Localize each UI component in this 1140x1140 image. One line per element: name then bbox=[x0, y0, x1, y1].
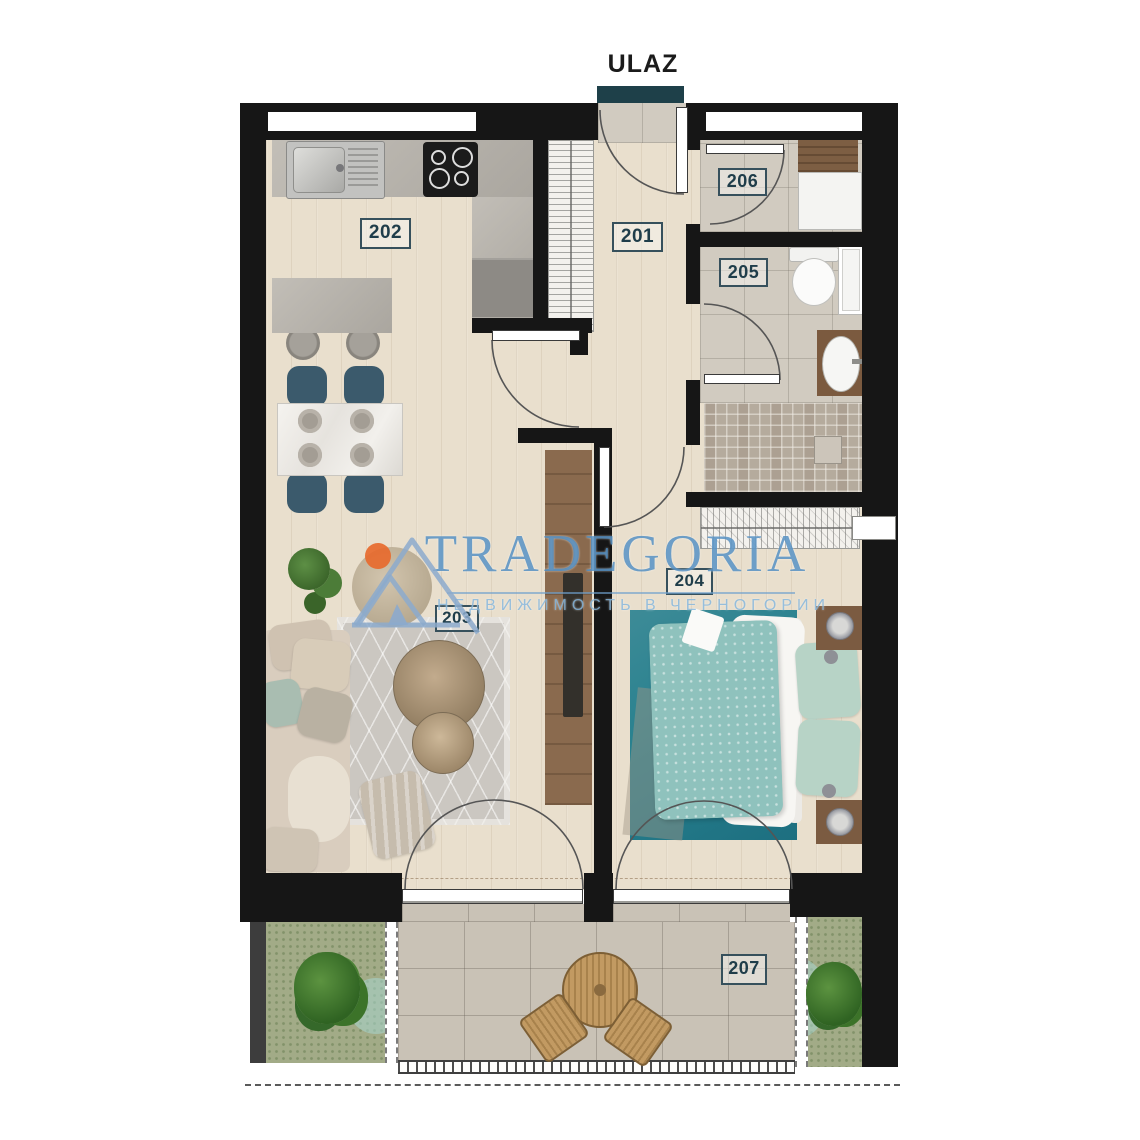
wall-205-204 bbox=[686, 492, 862, 507]
vanity-sink bbox=[822, 336, 860, 392]
room-label-206: 206 bbox=[718, 168, 767, 196]
wall-206-205 bbox=[700, 232, 862, 247]
hall-wardrobe bbox=[548, 228, 594, 332]
wall-bottom-left bbox=[240, 873, 402, 922]
terrace-floor-doorway-right bbox=[613, 904, 790, 922]
sink-drainboard bbox=[348, 148, 378, 190]
watermark-tagline: НЕДВИЖИМОСТЬ В ЧЕРНОГОРИИ bbox=[437, 597, 803, 615]
floor-plan: ULAZ bbox=[0, 0, 1140, 1140]
dining-table bbox=[277, 403, 403, 476]
burner-icon bbox=[431, 150, 446, 165]
ac-unit bbox=[852, 516, 896, 540]
fridge bbox=[472, 258, 533, 317]
door-206 bbox=[706, 144, 784, 154]
bedside-lamp bbox=[826, 612, 854, 640]
plot-boundary-dashed-line bbox=[245, 1084, 900, 1086]
window-top-left bbox=[268, 112, 476, 131]
place-setting bbox=[298, 443, 322, 467]
toilet-bowl bbox=[792, 258, 836, 306]
room-label-201: 201 bbox=[612, 222, 663, 252]
floor-entry-threshold bbox=[598, 103, 686, 143]
dining-chair bbox=[287, 472, 327, 513]
sofa-pillow bbox=[290, 637, 353, 693]
dining-chair bbox=[344, 366, 384, 407]
wall-hall-right-a bbox=[686, 140, 700, 150]
place-setting bbox=[350, 409, 374, 433]
terrace-border-strip-left bbox=[385, 922, 398, 1063]
entrance-door bbox=[676, 107, 688, 193]
bed-duvet bbox=[649, 620, 784, 820]
wall-hall-right-b bbox=[686, 224, 700, 304]
wall-bottom-right bbox=[790, 873, 898, 917]
sink-faucet bbox=[336, 164, 344, 172]
terrace-railing bbox=[398, 1060, 795, 1074]
bush-right bbox=[806, 962, 862, 1026]
door-204 bbox=[599, 447, 610, 527]
burner-icon bbox=[454, 171, 469, 186]
washing-machine bbox=[798, 172, 862, 230]
door-living bbox=[492, 330, 580, 341]
burner-icon bbox=[429, 168, 450, 189]
entrance-bar bbox=[597, 86, 684, 103]
place-setting bbox=[350, 443, 374, 467]
room-label-207: 207 bbox=[721, 954, 767, 985]
room-label-202: 202 bbox=[360, 218, 411, 249]
shower-drain bbox=[814, 436, 842, 464]
bedside-lamp bbox=[826, 808, 854, 836]
bush-left bbox=[294, 952, 360, 1024]
dining-chair bbox=[344, 472, 384, 513]
hall-wardrobe bbox=[548, 140, 594, 230]
wall-kitchen-closet bbox=[533, 130, 548, 333]
terrace-sliding-door-right bbox=[613, 889, 790, 904]
shower-tray bbox=[838, 245, 864, 315]
plant bbox=[288, 548, 330, 590]
door-205 bbox=[704, 374, 780, 384]
watermark-divider bbox=[447, 592, 795, 594]
terrace-table-center bbox=[594, 984, 606, 996]
burner-icon bbox=[452, 147, 473, 168]
terrace-sliding-door-left bbox=[402, 889, 583, 904]
wall-right bbox=[862, 103, 898, 917]
terrace-wall-left bbox=[250, 922, 266, 1063]
wall-hall-right-c bbox=[686, 380, 700, 445]
wall-stub-hall bbox=[518, 428, 612, 443]
decor-sphere bbox=[822, 784, 836, 798]
wardrobe-206 bbox=[798, 140, 858, 172]
window-top-right bbox=[706, 112, 862, 131]
wall-left bbox=[240, 103, 266, 880]
kitchen-island bbox=[272, 278, 392, 333]
decor-sphere bbox=[824, 650, 838, 664]
watermark-brand: TRADEGORIA bbox=[417, 524, 817, 584]
sofa-pillow bbox=[261, 826, 320, 874]
dining-chair bbox=[287, 366, 327, 407]
tv bbox=[563, 573, 583, 717]
room-label-205: 205 bbox=[719, 258, 768, 287]
terrace-floor-doorway-left bbox=[402, 904, 584, 922]
place-setting bbox=[298, 409, 322, 433]
terrace-wall-right bbox=[862, 917, 898, 1067]
entrance-label: ULAZ bbox=[593, 50, 693, 80]
coffee-table-small bbox=[412, 712, 474, 774]
